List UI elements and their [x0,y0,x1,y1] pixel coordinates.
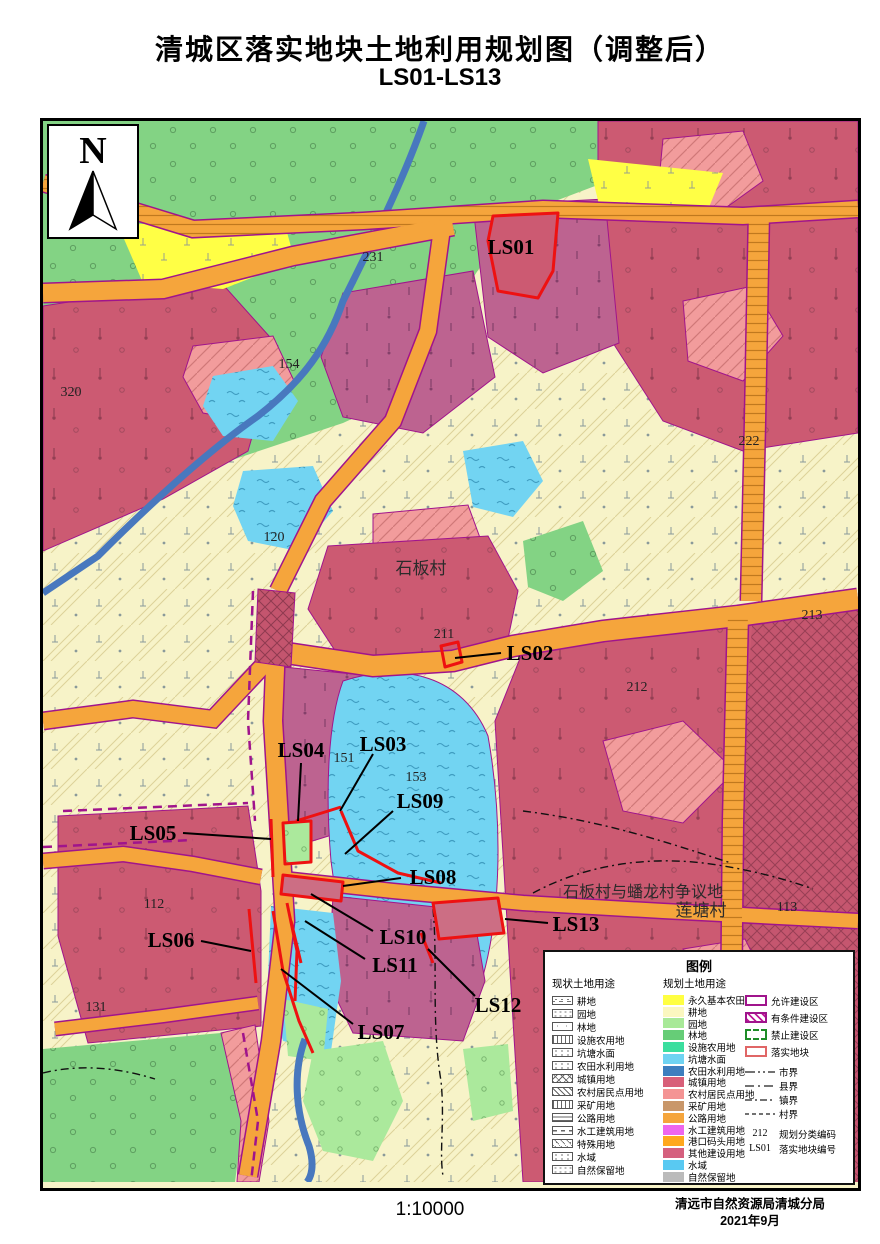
legend-item-label: 允许建设区 [771,994,819,1008]
legend-item-label: 自然保留地 [577,1163,625,1177]
color-swatch [663,1054,684,1064]
legend-item-label: 城镇用地 [577,1072,615,1086]
legend-code-item: 212规划分类编码 [745,1126,853,1141]
legend-item-label: 农村居民点用地 [577,1085,644,1099]
label-disputed-land: 石板村与蟠龙村争议地 [563,883,723,901]
legend-item-label: 市界 [779,1065,798,1079]
svg-text:153: 153 [406,770,427,785]
parcel-LS13 [433,898,504,939]
pattern-swatch-vlines [552,1100,573,1109]
legend-current-item: 采矿用地 [552,1098,662,1111]
legend-boundary-item: 村界 [745,1107,853,1121]
legend-item-label: 自然保留地 [688,1170,736,1184]
legend-current-item: 城镇用地 [552,1072,662,1085]
legend-current-item: 水工建筑用地 [552,1124,662,1137]
color-swatch [663,995,684,1005]
legend-current-item: 农村居民点用地 [552,1085,662,1098]
pattern-swatch-diagdots [552,1139,573,1148]
parcel-LS05 [271,819,273,877]
legend-item-label: 设施农用地 [577,1033,625,1047]
legend-item-label: 规划分类编码 [779,1127,836,1141]
north-label: N [79,130,106,172]
label-liantangcun: 莲塘村 [676,901,727,920]
svg-text:212: 212 [627,680,648,695]
pattern-swatch-waves [552,1152,573,1161]
label-shibancun: 石板村 [396,559,447,578]
legend-current-header: 现状土地用途 [552,976,662,991]
pattern-swatch-diag [552,1087,573,1096]
map-subtitle: LS01-LS13 [0,64,880,92]
pattern-swatch-vlines [552,1035,573,1044]
legend-item-label: 林地 [577,1020,596,1034]
legend-item-label: 坑塘水面 [577,1046,615,1060]
pattern-swatch-sparse [552,1022,573,1031]
north-arrow: N [48,125,138,238]
color-swatch [663,1030,684,1040]
zone-symbol-allow [745,995,767,1006]
legend-item-label: 水域 [577,1150,596,1164]
legend-planned-item: 自然保留地 [663,1171,763,1183]
zone-symbol-cond [745,1012,767,1023]
legend-item-label: 公路用地 [577,1111,615,1125]
label-LS09: LS09 [397,789,444,813]
legend-boundary-item: 市界 [745,1065,853,1079]
boundary-line-symbol [745,1082,775,1090]
legend-item-label: 禁止建设区 [771,1028,819,1042]
color-swatch [663,1042,684,1052]
svg-text:112: 112 [144,897,164,912]
page: 清城区落实地块土地利用规划图（调整后） LS01-LS13 [0,0,880,1244]
pattern-swatch-dots [552,1165,573,1174]
legend: 图例 现状土地用途 耕地园地林地设施农用地坑塘水面农田水利用地城镇用地农村居民点… [543,950,855,1185]
svg-text:120: 120 [264,530,285,545]
color-swatch [663,1018,684,1028]
legend-current-item: 公路用地 [552,1111,662,1124]
boundary-line-symbol [745,1068,775,1076]
svg-text:211: 211 [434,627,454,642]
legend-boundary-item: 县界 [745,1079,853,1093]
color-swatch [663,1089,684,1099]
legend-code-item: LS01落实地块编号 [745,1141,853,1156]
legend-boundary-item: 镇界 [745,1093,853,1107]
color-swatch [663,1077,684,1087]
pattern-swatch-hlines [552,1113,573,1122]
legend-item-label: 水工建筑用地 [577,1124,634,1138]
attribution: 清远市自然资源局清城分局 2021年9月 [620,1196,880,1230]
map-title: 清城区落实地块土地利用规划图（调整后） [0,28,880,68]
color-swatch [663,1172,684,1182]
zone-symbol-forbid [745,1029,767,1040]
legend-zone-item: 禁止建设区 [745,1026,853,1043]
boundary-line-symbol [745,1110,775,1118]
color-swatch [663,1136,684,1146]
label-LS06: LS06 [148,928,195,952]
legend-current-item: 特殊用地 [552,1137,662,1150]
legend-current-item: 设施农用地 [552,1033,662,1046]
scale-label: 1:10000 [260,1199,600,1221]
svg-text:151: 151 [334,751,355,766]
legend-marks-column: 允许建设区有条件建设区禁止建设区落实地块 市界县界镇界村界 212规划分类编码L… [745,992,853,1156]
svg-text:231: 231 [363,250,384,265]
label-LS05: LS05 [130,821,177,845]
legend-item-label: 落实地块 [771,1045,809,1059]
map-frame: LS01 LS02 LS03 LS04 LS05 LS06 LS07 LS08 … [40,118,861,1191]
legend-item-label: 农田水利用地 [577,1059,634,1073]
legend-current-item: 农田水利用地 [552,1059,662,1072]
label-LS03: LS03 [360,732,407,756]
color-swatch [663,1148,684,1158]
label-LS12: LS12 [475,993,522,1017]
color-swatch [663,1113,684,1123]
legend-item-label: 园地 [577,1007,596,1021]
attribution-date: 2021年9月 [620,1213,880,1230]
pattern-swatch-dashes [552,1126,573,1135]
color-swatch [663,1160,684,1170]
pattern-swatch-waves [552,1048,573,1057]
legend-current-item: 自然保留地 [552,1163,662,1176]
svg-text:320: 320 [61,385,82,400]
color-swatch [663,1066,684,1076]
label-LS08: LS08 [410,865,457,889]
legend-item-label: 有条件建设区 [771,1011,828,1025]
legend-current-column: 现状土地用途 耕地园地林地设施农用地坑塘水面农田水利用地城镇用地农村居民点用地采… [552,976,662,1176]
legend-current-item: 园地 [552,1007,662,1020]
legend-item-label: 县界 [779,1079,798,1093]
pattern-swatch-dots [552,1009,573,1018]
parcel-LS04 [283,821,311,864]
label-LS11: LS11 [372,953,418,977]
legend-current-item: 耕地 [552,994,662,1007]
legend-code-value: LS01 [745,1143,775,1154]
svg-text:154: 154 [279,357,300,372]
legend-current-item: 坑塘水面 [552,1046,662,1059]
legend-item-label: 镇界 [779,1093,798,1107]
label-LS04: LS04 [278,738,325,762]
label-LS07: LS07 [358,1020,405,1044]
color-swatch [663,1125,684,1135]
legend-planned-header: 规划土地用途 [663,976,763,991]
legend-title: 图例 [545,956,853,975]
legend-zone-item: 允许建设区 [745,992,853,1009]
legend-zone-item: 有条件建设区 [745,1009,853,1026]
label-LS02: LS02 [507,641,554,665]
pattern-swatch-cross [552,1074,573,1083]
attribution-agency: 清远市自然资源局清城分局 [620,1196,880,1213]
pattern-swatch-dotdash [552,996,573,1005]
legend-item-label: 采矿用地 [577,1098,615,1112]
legend-item-label: 落实地块编号 [779,1142,836,1156]
color-swatch [663,1007,684,1017]
label-LS13: LS13 [553,912,600,936]
legend-current-item: 林地 [552,1020,662,1033]
legend-code-value: 212 [745,1128,775,1139]
legend-current-item: 水域 [552,1150,662,1163]
color-swatch [663,1101,684,1111]
zone-symbol-parcel [745,1046,767,1057]
svg-text:113: 113 [777,900,797,915]
label-LS10: LS10 [380,925,427,949]
legend-zone-item: 落实地块 [745,1043,853,1060]
legend-item-label: 特殊用地 [577,1137,615,1151]
label-LS01: LS01 [488,235,535,259]
legend-item-label: 村界 [779,1107,798,1121]
svg-text:213: 213 [802,608,823,623]
svg-text:131: 131 [86,1000,107,1015]
pattern-swatch-waves [552,1061,573,1070]
legend-item-label: 耕地 [577,994,596,1008]
boundary-line-symbol [745,1096,775,1104]
svg-text:222: 222 [739,434,760,449]
